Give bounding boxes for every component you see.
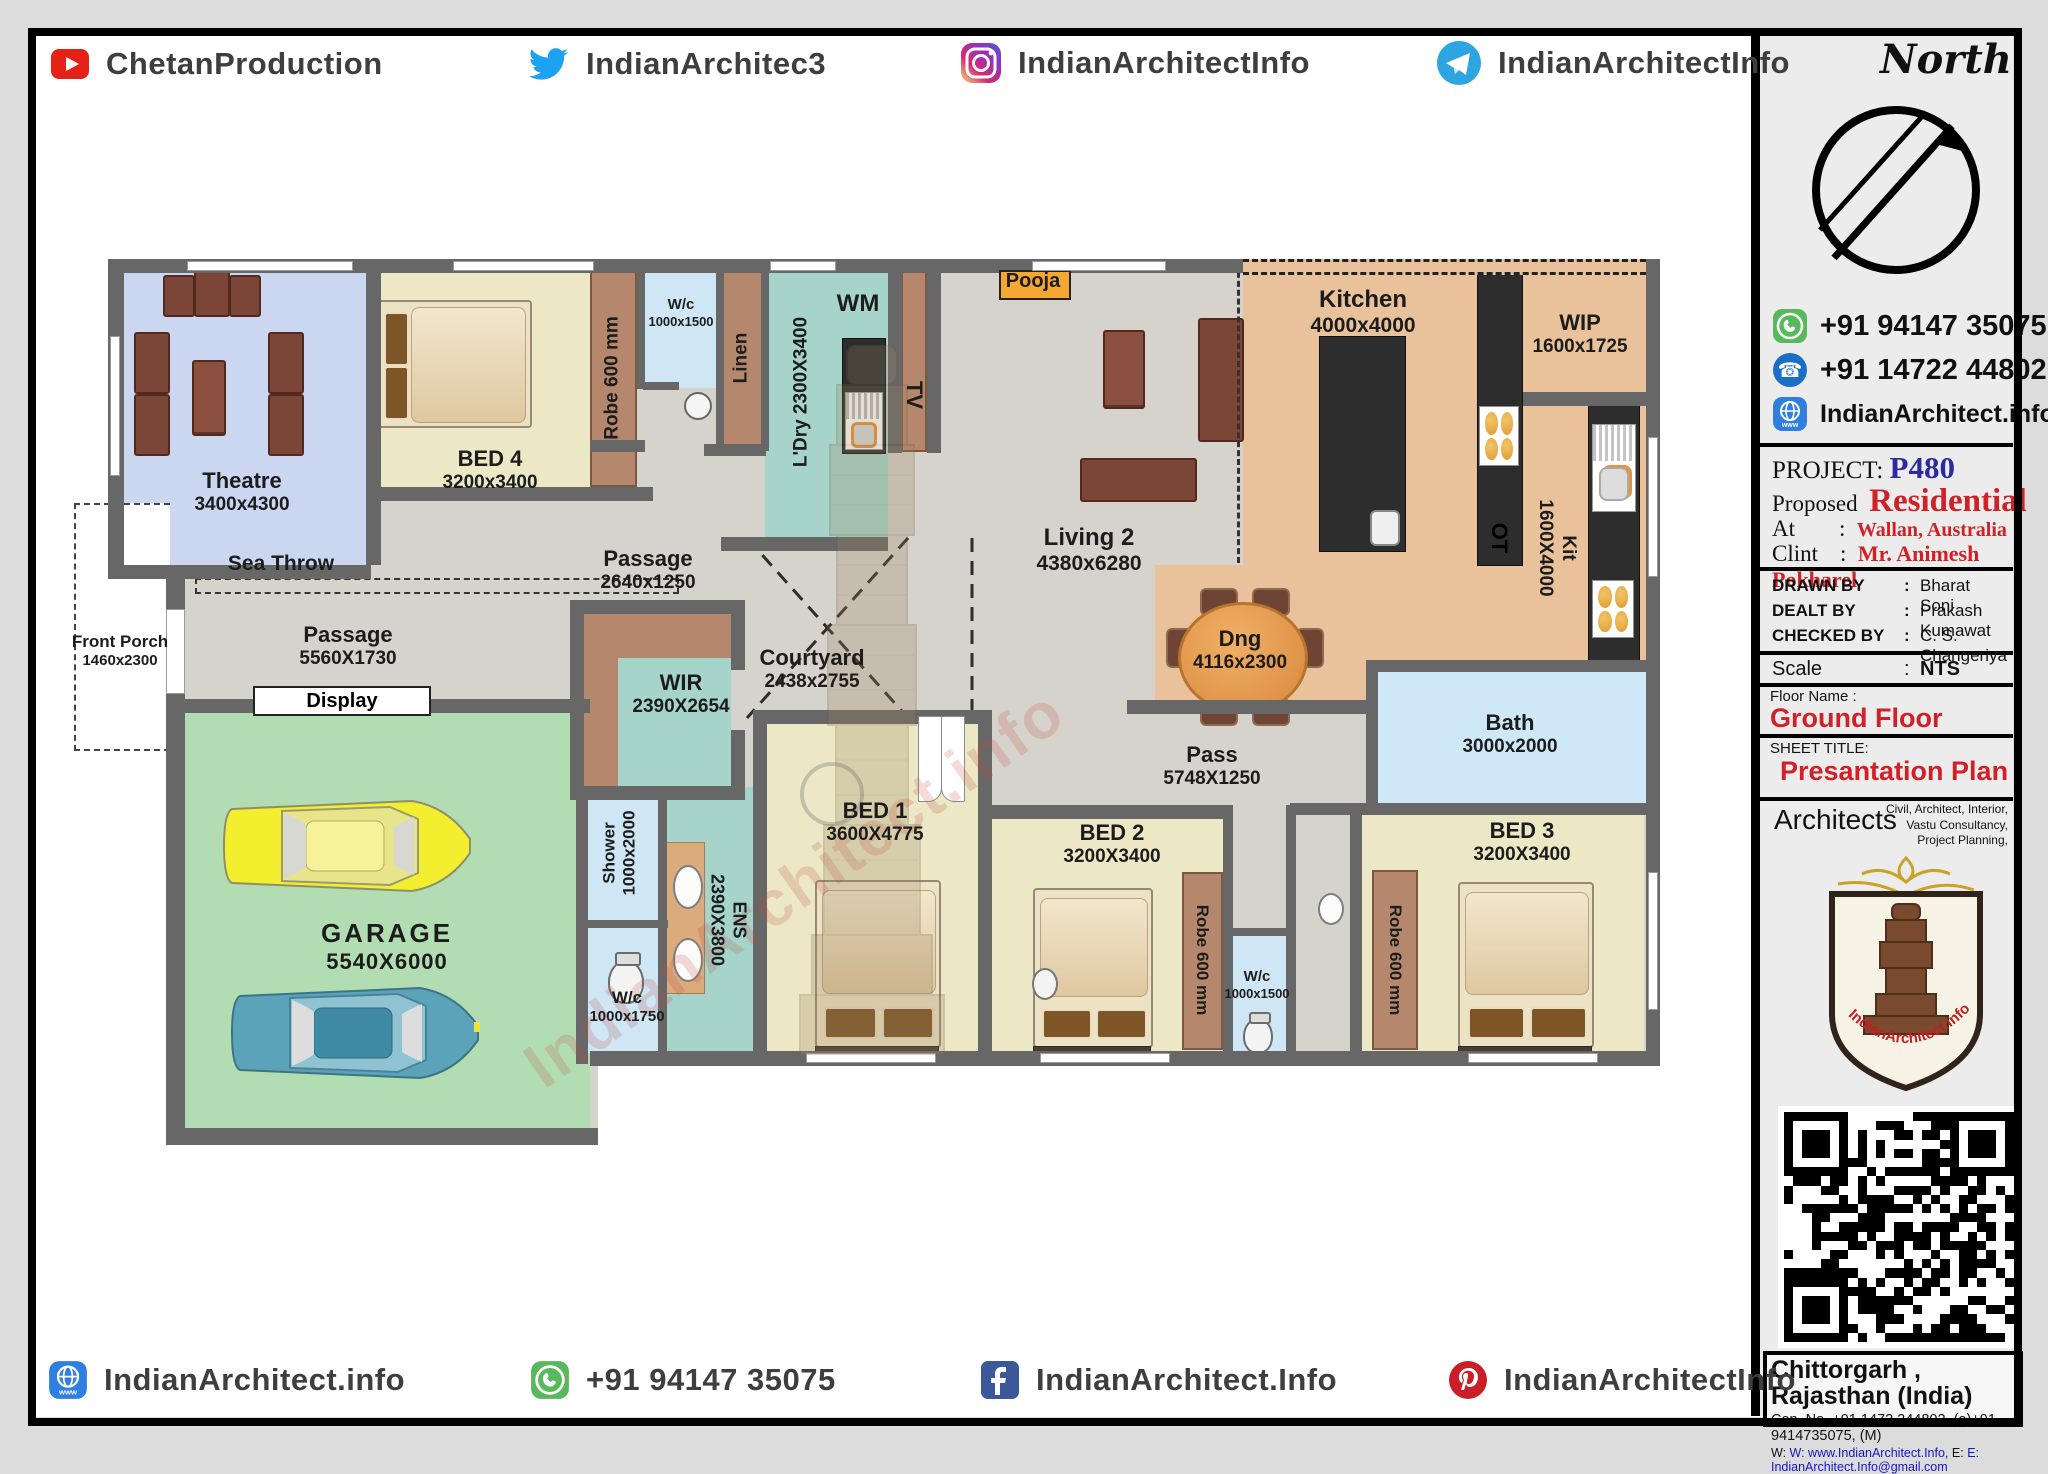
- wall: [590, 440, 645, 452]
- floor-name-value: Ground Floor: [1770, 703, 1942, 734]
- header-social-twitter[interactable]: IndianArchitec3: [528, 44, 826, 84]
- project-row: PROJECT: P480: [1772, 450, 1955, 486]
- telegram-icon: [1436, 40, 1482, 86]
- phone-icon: ☎: [1772, 352, 1808, 388]
- room-label-robe3: Robe 600 mm: [1385, 905, 1405, 1016]
- svg-text:☎: ☎: [1778, 360, 1803, 382]
- window: [1648, 437, 1658, 577]
- youtube-icon: [50, 44, 90, 84]
- island-sink-icon: [1370, 510, 1400, 546]
- wash-basin-icon: [1032, 968, 1058, 1000]
- proposed-row: Proposed Residential: [1772, 483, 2027, 520]
- sheet-title-value: Presantation Plan: [1780, 756, 2008, 787]
- room-label-wc-top: W/c1000x1500: [648, 296, 713, 329]
- room-label-bed4: BED 43200x3400: [442, 446, 537, 494]
- wall: [761, 261, 769, 451]
- checked-by-row: CHECKED BY:C. S. Changeriya: [1772, 626, 2008, 646]
- contact-whatsapp[interactable]: +91 94147 35075: [1772, 308, 2047, 344]
- social-handle: IndianArchitectInfo: [1018, 45, 1310, 81]
- room-label-bed3: BED 33200X3400: [1473, 818, 1570, 866]
- wall: [1127, 700, 1374, 714]
- theatre-seat: [134, 332, 170, 394]
- window: [453, 261, 594, 271]
- header-social-telegram[interactable]: IndianArchitectInfo: [1436, 40, 1790, 86]
- sheet-title-label: SHEET TITLE:: [1770, 740, 1869, 757]
- wall: [570, 600, 745, 614]
- theatre-seat: [134, 394, 170, 456]
- north-label: North: [1880, 36, 2008, 83]
- wall: [1290, 803, 1646, 815]
- dealt-by-row: DEALT BY:Prakash Kumawat: [1772, 601, 2008, 621]
- wash-basin-icon: [684, 392, 712, 420]
- header-social-youtube[interactable]: ChetanProduction: [50, 44, 383, 84]
- architects-logo: IndianArchitect.info: [1812, 850, 2000, 1096]
- social-handle: ChetanProduction: [106, 46, 383, 82]
- room-label-ot: OT: [1486, 523, 1512, 554]
- living-sofa: [1080, 458, 1197, 502]
- wall: [716, 261, 724, 451]
- room-label-courtyard: Courtyard2438x2755: [759, 645, 864, 693]
- room-label-pooja: Pooja: [1006, 270, 1060, 294]
- sidebar-divider: [1751, 36, 1760, 1416]
- room-label-linen: Linen: [731, 333, 754, 384]
- services-text: Civil, Architect, Interior, Vastu Consul…: [1876, 802, 2008, 849]
- theatre-seat: [229, 275, 261, 317]
- contact-website[interactable]: www IndianArchitect.info: [1772, 396, 2048, 432]
- room-label-living: Living 24380x6280: [1036, 524, 1141, 577]
- wall: [704, 444, 766, 456]
- address-city: Chittorgarh , Rajasthan (India): [1771, 1357, 2015, 1410]
- room-label-robe2: Robe 600 mm: [1192, 905, 1212, 1016]
- wall: [166, 1128, 598, 1145]
- whatsapp-icon: [1772, 308, 1808, 344]
- room-label-wir: WIR2390X2654: [632, 670, 729, 718]
- wall: [166, 694, 185, 1145]
- front-door-opening: [166, 609, 185, 694]
- room-label-front-porch: Front Porch1460x2300: [72, 632, 168, 670]
- footer-social-whatsapp[interactable]: +91 94147 35075: [530, 1360, 836, 1400]
- divider: [1760, 734, 2013, 738]
- facebook-icon: [980, 1360, 1020, 1400]
- bed4-furniture: [376, 300, 532, 428]
- kitchen-open-boundary: [1237, 263, 1240, 563]
- address-links[interactable]: W: W: www.IndianArchitect.Info, E: E: In…: [1771, 1446, 2015, 1474]
- footer-social-website[interactable]: www IndianArchitect.info: [48, 1360, 405, 1400]
- wall: [992, 805, 1223, 819]
- twitter-icon: [528, 44, 570, 84]
- room-label-wm: WM: [837, 290, 880, 318]
- room-label-ldry: L'Dry 2300X3400: [791, 317, 814, 467]
- footer-social-pinterest[interactable]: IndianArchitectInfo: [1448, 1360, 1796, 1400]
- stove-icon: [1592, 580, 1634, 638]
- room-label-bed1: BED 13600X4775: [826, 798, 923, 846]
- social-handle: IndianArchitectInfo: [1498, 45, 1790, 81]
- window: [1040, 1053, 1170, 1063]
- scale-row: Scale:NTS: [1772, 658, 2008, 681]
- room-label-kit: Kit1600X4000: [1533, 499, 1579, 596]
- contact-phone[interactable]: ☎ +91 14722 44802: [1772, 352, 2047, 388]
- drawn-by-row: DRAWN BY:Bharat Soni: [1772, 576, 2008, 596]
- globe-icon: www: [1772, 396, 1808, 432]
- living-table: [1103, 330, 1145, 409]
- theatre-seat: [268, 332, 304, 394]
- wall: [366, 259, 381, 565]
- whatsapp-icon: [530, 1360, 570, 1400]
- wash-basin-icon: [673, 865, 703, 909]
- room-label-shower: Shower1000x2000: [600, 810, 641, 895]
- wall: [731, 730, 745, 800]
- wall: [1350, 805, 1362, 1064]
- stove-icon: [1479, 406, 1519, 466]
- presentation-plan-sheet: { "header": { "social": [ {"icon": "yout…: [0, 0, 2048, 1449]
- svg-text:www: www: [58, 1387, 78, 1396]
- project-code: P480: [1890, 450, 1955, 485]
- wash-basin-icon: [1318, 893, 1344, 925]
- wall: [576, 920, 668, 928]
- divider: [1760, 443, 2013, 447]
- svg-text:www: www: [1781, 422, 1799, 429]
- globe-icon: www: [48, 1360, 88, 1400]
- room-label-kitchen: Kitchen4000x4000: [1310, 286, 1415, 339]
- sink-unit-icon: [1592, 424, 1636, 512]
- bed2-furniture: [1033, 888, 1153, 1048]
- car-blue: [228, 982, 484, 1084]
- wall: [1523, 392, 1646, 406]
- room-label-tv: TV: [901, 381, 927, 409]
- divider: [1760, 683, 2013, 687]
- wall: [637, 261, 645, 389]
- alfresco-dashed-wall: [1243, 259, 1646, 275]
- wall: [643, 382, 679, 390]
- window: [1648, 872, 1658, 1010]
- display-cabinet: Display: [253, 686, 431, 716]
- instagram-icon: [960, 42, 1002, 84]
- theatre-seat: [194, 271, 230, 317]
- wall: [1366, 660, 1646, 672]
- room-label-garage: GARAGE5540X6000: [321, 918, 453, 975]
- room-label-ens: ENS2390X3800: [706, 874, 749, 966]
- room-label-passage1: Passage2640x1250: [600, 546, 695, 594]
- room-label-bed2: BED 23200X3400: [1063, 820, 1160, 868]
- social-handle: IndianArchitec3: [586, 46, 826, 82]
- theatre-seat: [163, 275, 195, 317]
- room-label-passage2: Passage5560X1730: [299, 622, 396, 670]
- proposed-value: Residential: [1869, 483, 2027, 519]
- watermark-tower: [792, 345, 952, 1055]
- toilet-icon: [1243, 1018, 1273, 1054]
- theatre-table: [192, 360, 226, 436]
- room-label-robe4: Robe 600 mm: [602, 316, 625, 440]
- room-label-theatre: Theatre3400x4300: [194, 468, 289, 516]
- wall: [978, 710, 992, 1064]
- wash-basin-icon: [673, 938, 703, 982]
- wall: [570, 600, 584, 800]
- window: [770, 261, 836, 271]
- room-label-wc-bm: W/c1000x1500: [1224, 968, 1289, 1001]
- room-label-pass: Pass5748X1250: [1163, 742, 1260, 790]
- at-row: At: Wallan, Australia: [1772, 516, 2007, 542]
- wir-robe-left: [584, 658, 618, 786]
- qr-code[interactable]: [1778, 1106, 2020, 1348]
- window: [187, 261, 353, 271]
- theatre-seat: [268, 394, 304, 456]
- address-contact-numbers: Con. No. +91 1472 244802, (o)+91 9414735…: [1771, 1412, 2015, 1444]
- bed3-furniture: [1458, 882, 1594, 1048]
- wall: [1366, 660, 1378, 803]
- address-block: Chittorgarh , Rajasthan (India) Con. No.…: [1763, 1351, 2023, 1427]
- window: [1468, 1053, 1598, 1063]
- header-social-instagram[interactable]: IndianArchitectInfo: [960, 42, 1310, 84]
- wall: [753, 710, 767, 1064]
- wall: [166, 579, 185, 611]
- room-label-bath: Bath3000x2000: [1462, 710, 1557, 758]
- room-label-dng: Dng4116x2300: [1193, 626, 1287, 674]
- room-label-wc-bl: W/c1000x1750: [589, 988, 664, 1026]
- at-value: Wallan, Australia: [1857, 519, 2007, 541]
- wall: [731, 600, 745, 670]
- footer-social-facebook[interactable]: IndianArchitect.Info: [980, 1360, 1337, 1400]
- wall: [1286, 805, 1296, 1064]
- room-label-sea-throw: Sea Throw: [228, 552, 334, 577]
- window: [110, 336, 120, 476]
- car-yellow: [222, 795, 474, 897]
- north-compass-icon: [1806, 100, 1986, 280]
- pinterest-icon: [1448, 1360, 1488, 1400]
- divider: [1760, 797, 2013, 801]
- room-label-wip: WIP1600x1725: [1532, 310, 1627, 358]
- wall: [1228, 928, 1286, 936]
